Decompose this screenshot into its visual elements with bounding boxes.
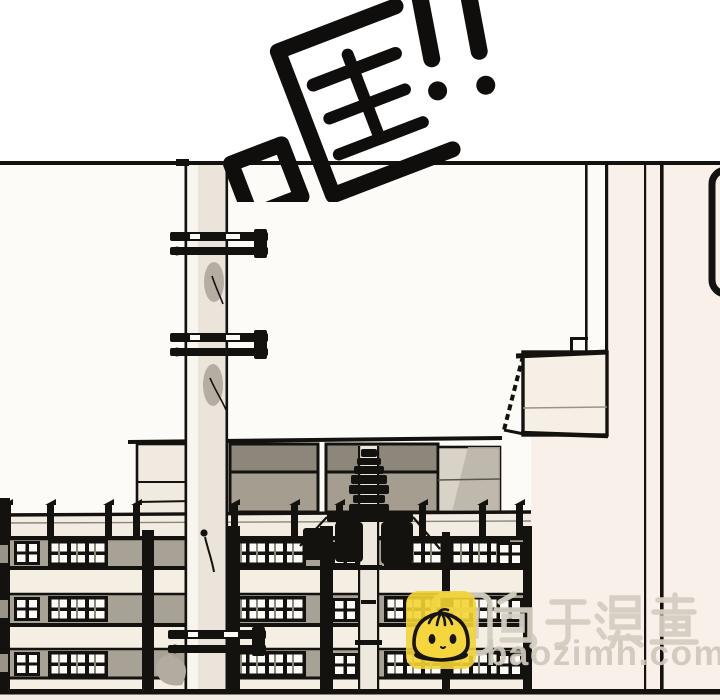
- comic-page: 哐!! 包子漫畫: [0, 0, 720, 700]
- panel-top-border: [0, 161, 720, 165]
- comic-panel-art: [0, 0, 720, 700]
- panel-bottom-border: [0, 689, 720, 695]
- watermark-site-url: baozimh.com: [486, 634, 720, 674]
- rooftop-structures: [128, 438, 502, 514]
- gutter-bottom: [0, 695, 720, 700]
- rounded-signboard: [712, 170, 720, 294]
- gutter-top: [0, 0, 720, 161]
- baozi-bun-mascot-icon: [406, 591, 476, 669]
